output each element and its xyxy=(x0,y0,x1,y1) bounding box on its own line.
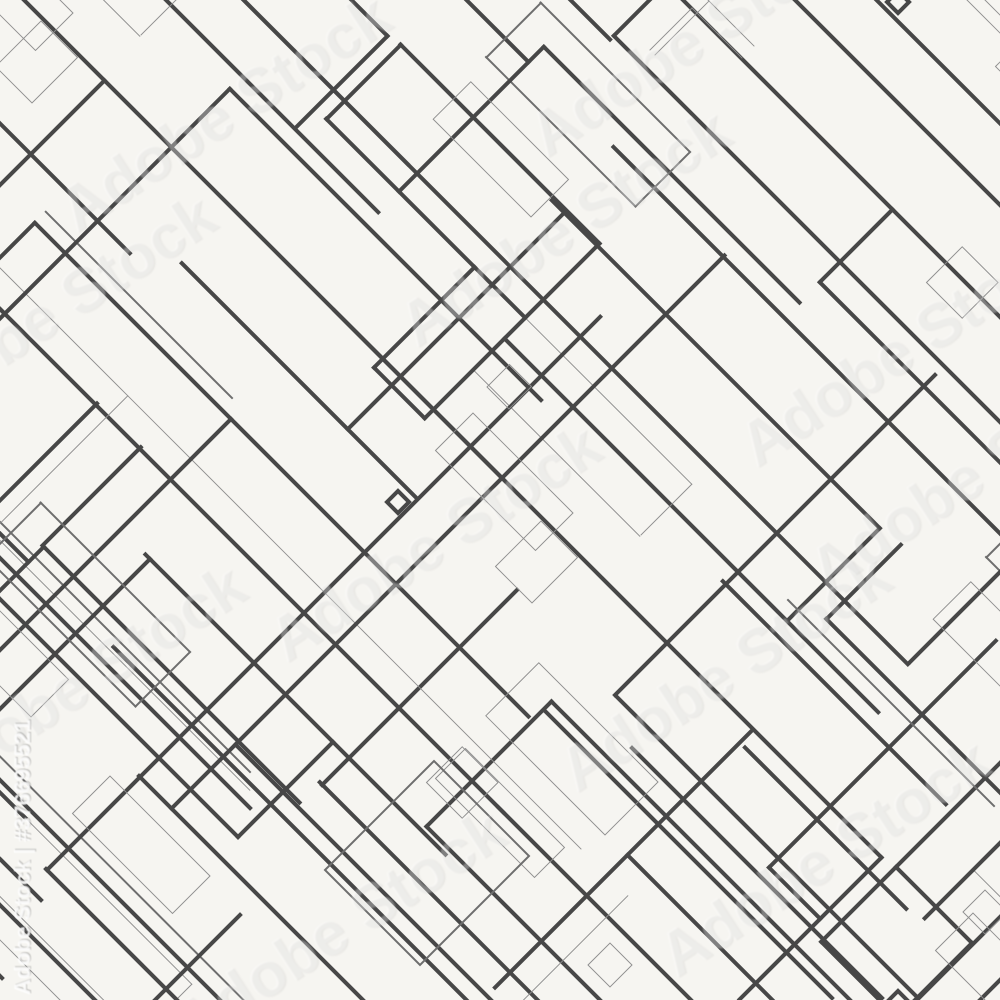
svg-text:Adobe Stock | #376695521: Adobe Stock | #376695521 xyxy=(10,720,35,995)
